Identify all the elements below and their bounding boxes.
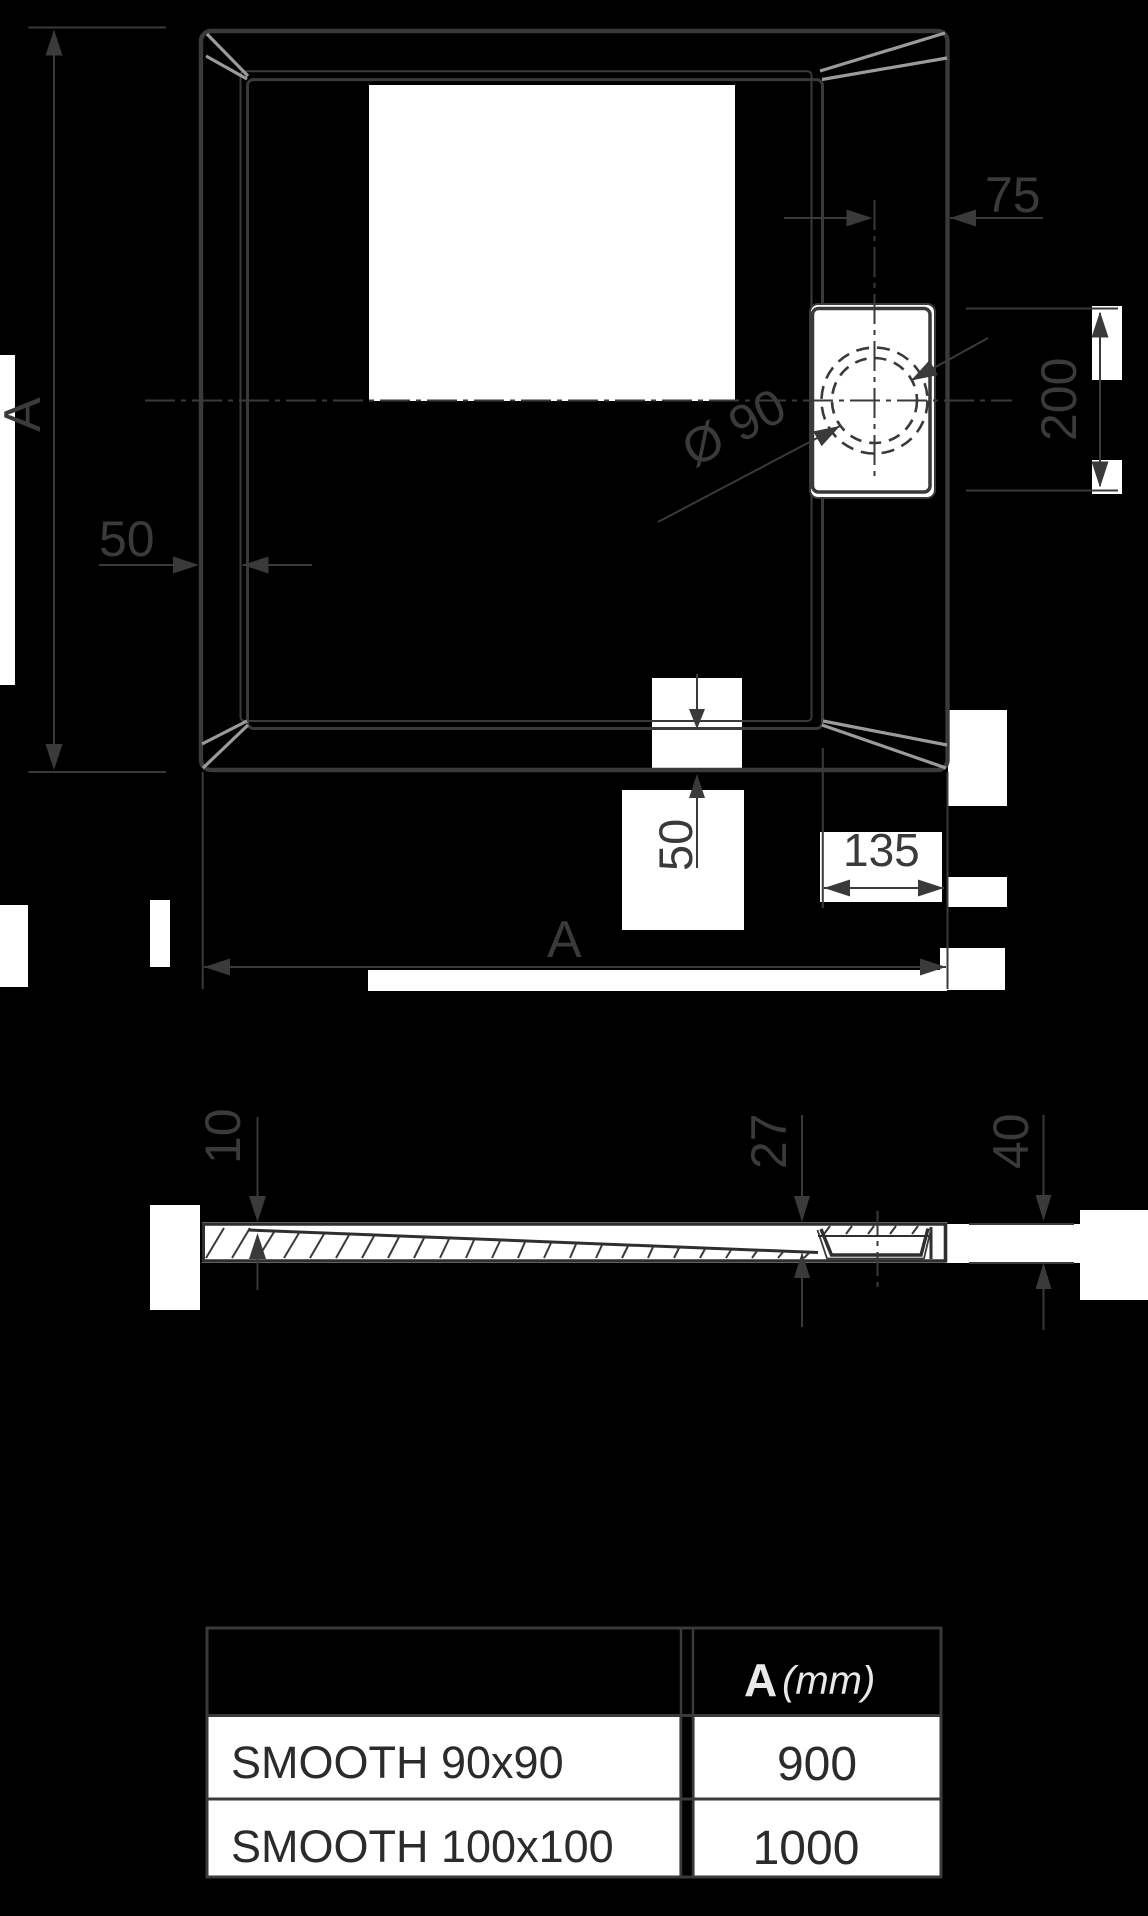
svg-text:135: 135 — [843, 824, 920, 876]
svg-text:A: A — [547, 911, 582, 969]
svg-text:75: 75 — [985, 167, 1041, 223]
svg-text:A: A — [744, 1654, 777, 1706]
svg-text:10: 10 — [195, 1108, 251, 1164]
svg-text:900: 900 — [777, 1738, 857, 1791]
svg-text:50: 50 — [99, 511, 155, 567]
svg-text:A: A — [0, 397, 52, 432]
svg-text:200: 200 — [1031, 358, 1087, 441]
svg-text:SMOOTH 100x100: SMOOTH 100x100 — [231, 1821, 614, 1872]
svg-text:40: 40 — [983, 1113, 1039, 1169]
svg-text:27: 27 — [741, 1113, 797, 1169]
svg-text:1000: 1000 — [753, 1822, 860, 1875]
svg-text:SMOOTH 90x90: SMOOTH 90x90 — [231, 1737, 564, 1788]
svg-text:(mm): (mm) — [782, 1659, 875, 1703]
svg-text:50: 50 — [649, 819, 702, 871]
